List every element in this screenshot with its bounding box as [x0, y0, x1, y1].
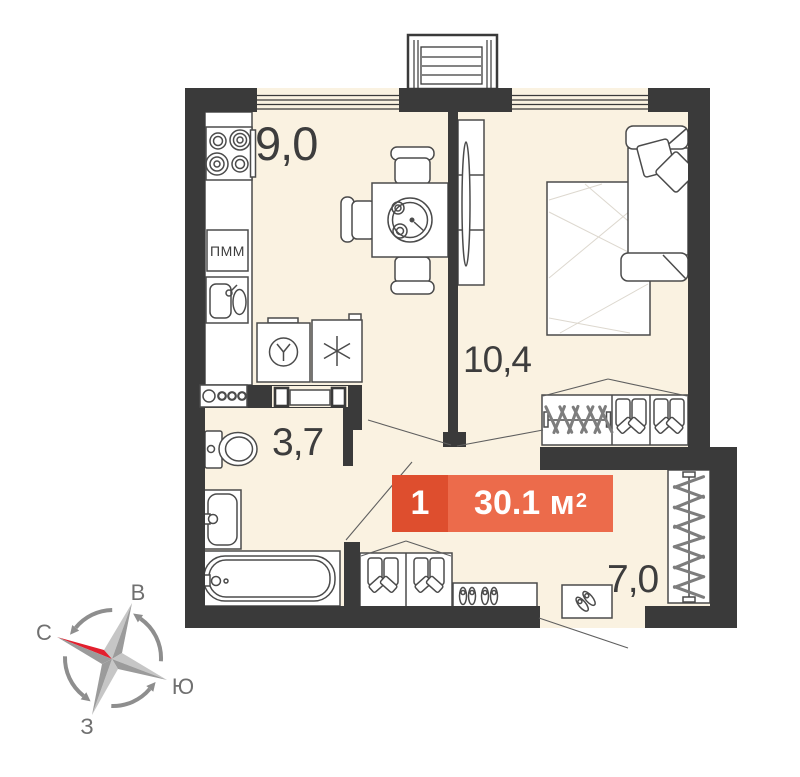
bathroom-sink-icon: [202, 490, 241, 549]
room-area-living: 10,4: [463, 339, 531, 381]
compass-label-north: С: [36, 620, 52, 645]
hall-wardrobe-icon: [360, 553, 452, 607]
total-area-value: 30.1 м: [474, 484, 575, 523]
washing-machine-icon: [257, 318, 310, 382]
room-area-kitchen: 9,0: [255, 116, 317, 171]
bedroom-window-icon: [512, 88, 648, 112]
room-area-hallway: 7,0: [607, 558, 658, 602]
compass-label-south: Ю: [172, 674, 194, 699]
compass-label-east: В: [131, 580, 146, 605]
room-area-bathroom: 3,7: [272, 421, 323, 465]
floor-plan-drawing: В С Ю З: [0, 0, 800, 777]
chair-icon: [395, 257, 430, 283]
rooms-count-badge: 1: [392, 475, 448, 532]
bathtub-icon: [198, 551, 340, 606]
sofa-icon: [621, 126, 697, 281]
compass-label-west: З: [80, 714, 93, 739]
shoe-mat-icon: [562, 585, 612, 618]
tv-unit-icon: [458, 120, 484, 285]
shoe-rack-icon: [453, 583, 537, 610]
floor-plan: В С Ю З 9,0 10,4 3,7 7,0 ПММ 1 30.1 м2: [0, 0, 800, 777]
total-area-exponent: 2: [576, 490, 587, 513]
fridge-icon: [312, 314, 362, 382]
total-area-badge: 30.1 м2: [448, 475, 613, 532]
dishwasher-label: ПММ: [207, 230, 248, 271]
coat-rack-icon: [668, 470, 710, 603]
bathroom-door-icon: [272, 386, 348, 407]
kitchen-sink-icon: [206, 277, 248, 323]
ac-unit-icon: [408, 35, 497, 89]
bedroom-wardrobe-icon: [542, 395, 688, 445]
compass-rose: В С Ю З: [36, 580, 194, 739]
kitchen-window-icon: [257, 88, 399, 112]
toilet-icon: [205, 431, 257, 468]
area-badge: 1 30.1 м2: [392, 475, 613, 532]
utility-meters-icon: [200, 385, 247, 407]
